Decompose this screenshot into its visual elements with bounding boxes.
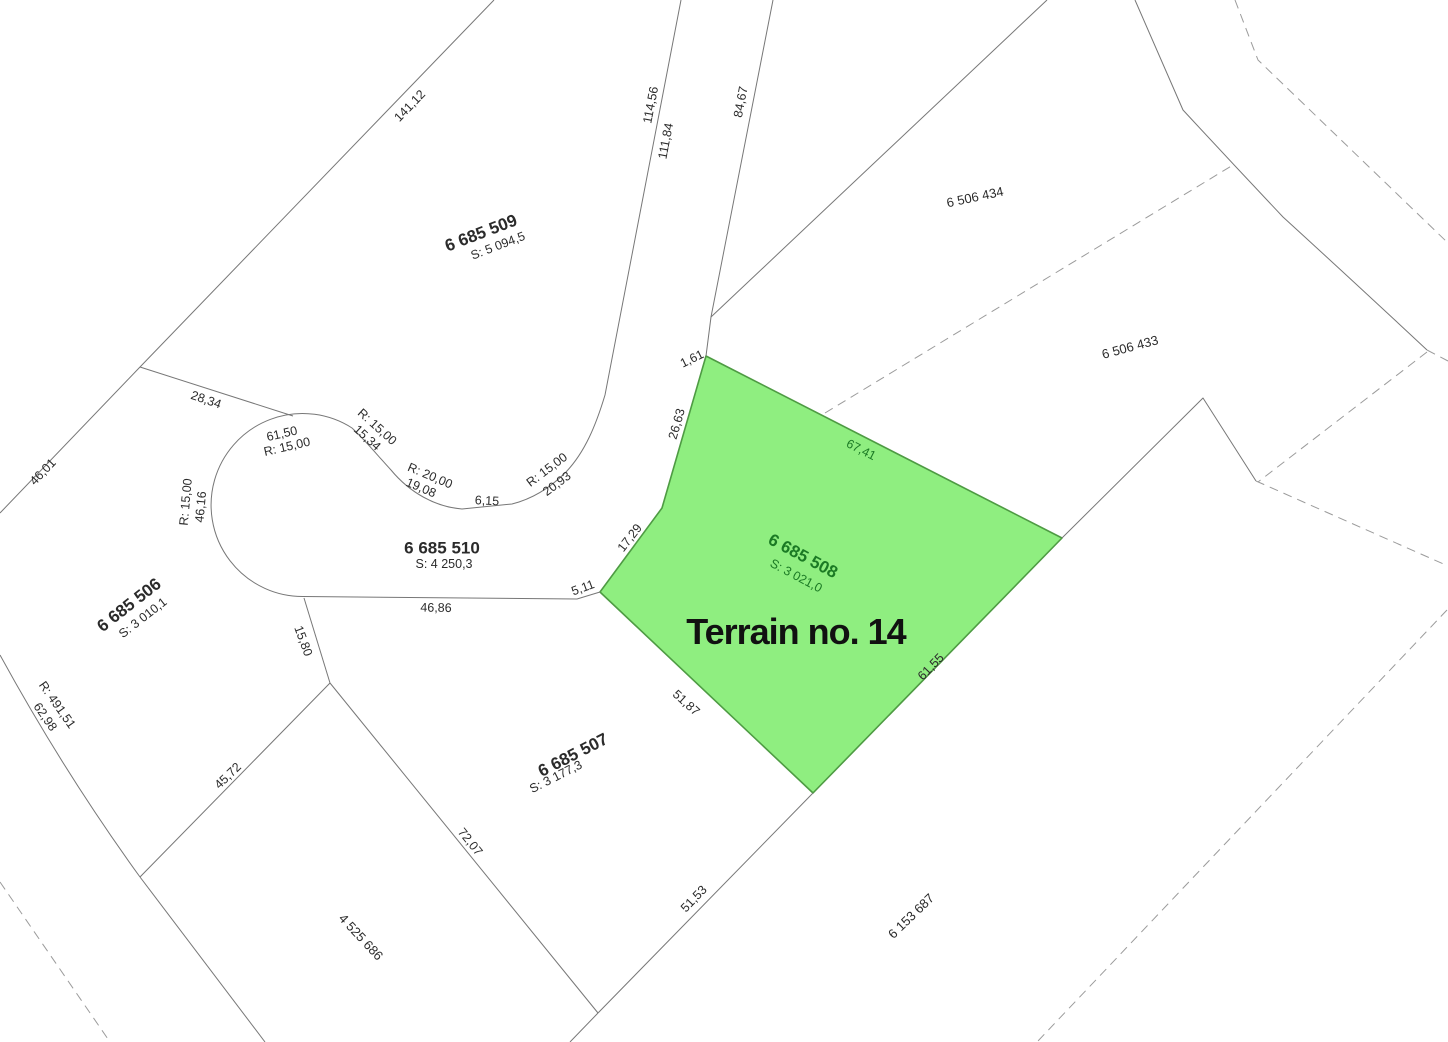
boundary-bottom-stub — [570, 1013, 598, 1042]
boundary-east-curve — [1135, 0, 1427, 350]
dashed-sw — [0, 882, 110, 1042]
dim-46-16: 46,16 — [193, 491, 208, 523]
boundary-72-07 — [330, 683, 598, 1013]
dashed-se — [1256, 481, 1448, 566]
boundary-nw-long — [0, 0, 494, 513]
dim-6-15: 6,15 — [475, 494, 500, 508]
dashed-bottom-right — [1037, 610, 1447, 1042]
boundary-45-72 — [140, 683, 330, 877]
dashed-ne — [1235, 0, 1448, 243]
dashed-434-433 — [825, 165, 1233, 413]
selected-parcel-title: Terrain no. 14 — [686, 614, 905, 650]
road-east-edge — [706, 0, 773, 356]
parcel-510-area: S: 4 250,3 — [416, 558, 473, 571]
boundary-r491-arc — [0, 655, 140, 877]
plan-linework — [0, 0, 1448, 1042]
boundary-ne-diagonal — [711, 0, 1047, 317]
boundary-east-v — [1062, 398, 1256, 538]
cadastral-plan: 141,12 114,56 111,84 84,67 1,61 26,63 67… — [0, 0, 1448, 1042]
road-west-edge-and-culdesac — [211, 0, 681, 599]
parcel-510-number: 6 685 510 — [404, 540, 480, 557]
dashed-east-stub — [1427, 350, 1448, 361]
boundary-51-53 — [598, 793, 813, 1013]
boundary-sw-wedge — [140, 877, 265, 1042]
dashed-east-inner — [1258, 352, 1427, 482]
dim-46-86: 46,86 — [420, 601, 451, 614]
